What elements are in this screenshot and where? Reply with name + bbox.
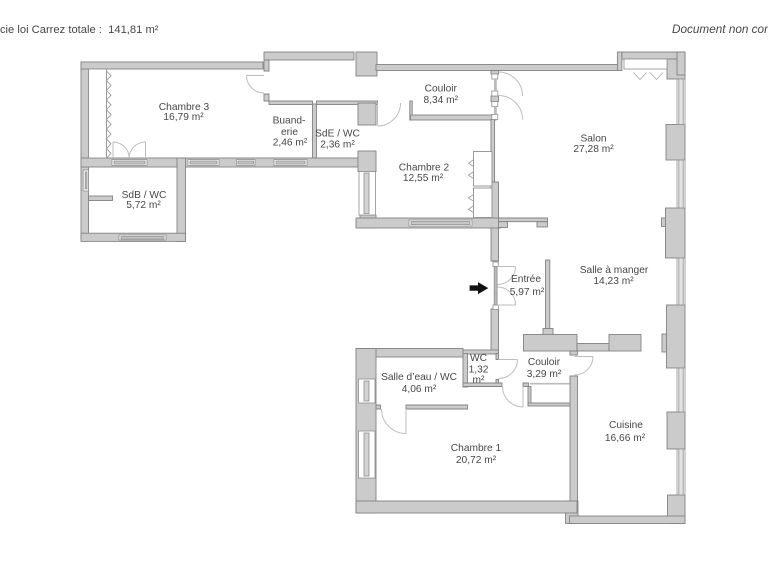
svg-text:1,32: 1,32	[469, 365, 489, 376]
svg-text:8,34 m²: 8,34 m²	[424, 95, 459, 106]
svg-text:27,28 m²: 27,28 m²	[573, 144, 614, 155]
svg-text:Buand-: Buand-	[273, 116, 306, 127]
svg-text:Superficie loi Carrez totale :: Superficie loi Carrez totale : 141,81 m²	[0, 24, 159, 36]
svg-text:5,72 m²: 5,72 m²	[126, 200, 161, 211]
svg-text:Couloir: Couloir	[528, 357, 561, 368]
svg-text:Chambre 1: Chambre 1	[451, 443, 502, 454]
svg-text:16,79 m²: 16,79 m²	[163, 112, 204, 123]
svg-text:2,46 m²: 2,46 m²	[273, 137, 308, 148]
svg-text:Salle à manger: Salle à manger	[580, 265, 649, 276]
svg-text:16,66 m²: 16,66 m²	[605, 433, 646, 444]
svg-text:WC: WC	[470, 353, 487, 364]
svg-text:Salle d’eau / WC: Salle d’eau / WC	[381, 372, 457, 383]
svg-text:Couloir: Couloir	[425, 84, 458, 95]
svg-text:erie: erie	[281, 127, 298, 138]
svg-text:3,29 m²: 3,29 m²	[527, 369, 562, 380]
svg-text:20,72 m²: 20,72 m²	[456, 455, 497, 466]
svg-text:2,36 m²: 2,36 m²	[320, 140, 355, 151]
svg-text:14,23 m²: 14,23 m²	[593, 276, 634, 287]
svg-text:Entrée: Entrée	[511, 274, 541, 285]
svg-text:5,97 m²: 5,97 m²	[510, 287, 545, 298]
svg-text:Cuisine: Cuisine	[609, 420, 643, 431]
svg-text:12,55 m²: 12,55 m²	[403, 173, 444, 184]
svg-text:SdE / WC: SdE / WC	[315, 129, 360, 140]
svg-text:m²: m²	[473, 375, 485, 386]
svg-text:Chambre 2: Chambre 2	[399, 163, 450, 174]
svg-text:Document non contractuel: Document non contractuel	[672, 23, 768, 36]
svg-text:4,06 m²: 4,06 m²	[402, 384, 437, 395]
